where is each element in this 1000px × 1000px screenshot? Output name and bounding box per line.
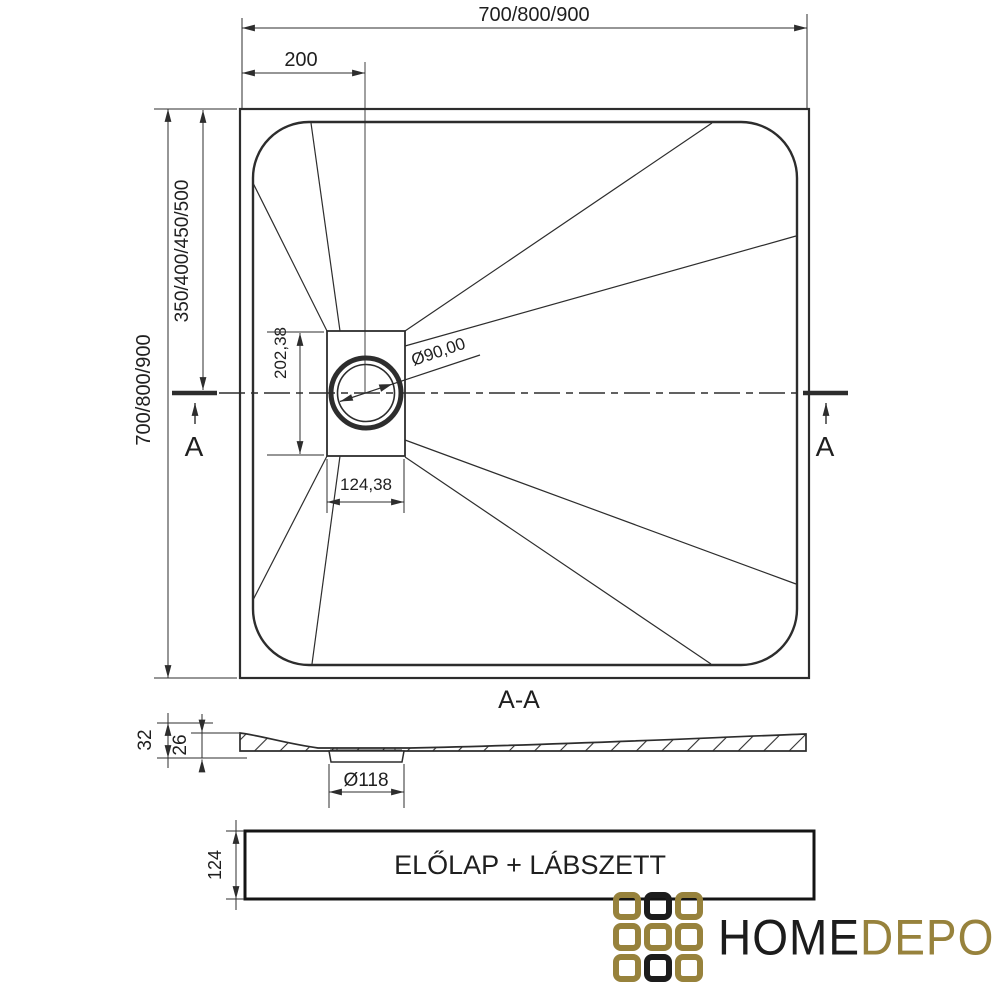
logo-grid-square [644,892,672,920]
logo-grid-square [644,923,672,951]
homedepo-logo: HOMEDEPO [613,892,994,982]
logo-grid-square [675,923,703,951]
panel-label: ELŐLAP + LÁBSZETT [394,849,666,880]
logo-grid-square [613,892,641,920]
logo-grid-square [675,954,703,982]
dim-left-height-label: 700/800/900 [133,334,155,445]
dim-top-width-label: 700/800/900 [478,4,589,26]
technical-drawing-page: A A 700/800/900 200 700/800/900 350/400/… [0,0,1000,1000]
section-marker-right-label: A [816,431,835,462]
logo-wordmark: HOMEDEPO [718,888,994,985]
plan-view [172,109,848,678]
dim-height-body-label: 26 [170,734,191,755]
cad-drawing: A A 700/800/900 200 700/800/900 350/400/… [0,0,1000,1000]
logo-grid-square [675,892,703,920]
dim-recess-height-label: 202,38 [271,327,290,379]
dim-center-label: 350/400/450/500 [172,180,193,323]
dim-recess-width-label: 124,38 [340,475,392,494]
dim-drain-hole-label: Ø118 [343,770,388,791]
section-cut-marker-left [172,393,217,424]
logo-grid-square [613,954,641,982]
section-marker-left-label: A [185,431,204,462]
drain-diameter-arrow [379,384,393,392]
logo-word-secondary: DEPO [860,909,994,965]
dim-drain-diameter-label: Ø90,00 [409,334,468,370]
logo-word-primary: HOME [718,909,860,965]
logo-grid [613,892,703,982]
dim-height-total-label: 32 [135,729,156,750]
section-title: A-A [498,686,540,714]
logo-grid-square [644,954,672,982]
dim-drain-diameter-line [340,355,480,402]
section-drain-boss [329,751,404,762]
dim-panel-height-label: 124 [205,850,225,880]
panel-dimension [226,820,244,910]
section-view [240,733,806,762]
section-profile [240,733,806,751]
logo-grid-square [613,923,641,951]
dim-offset-label: 200 [284,49,317,71]
